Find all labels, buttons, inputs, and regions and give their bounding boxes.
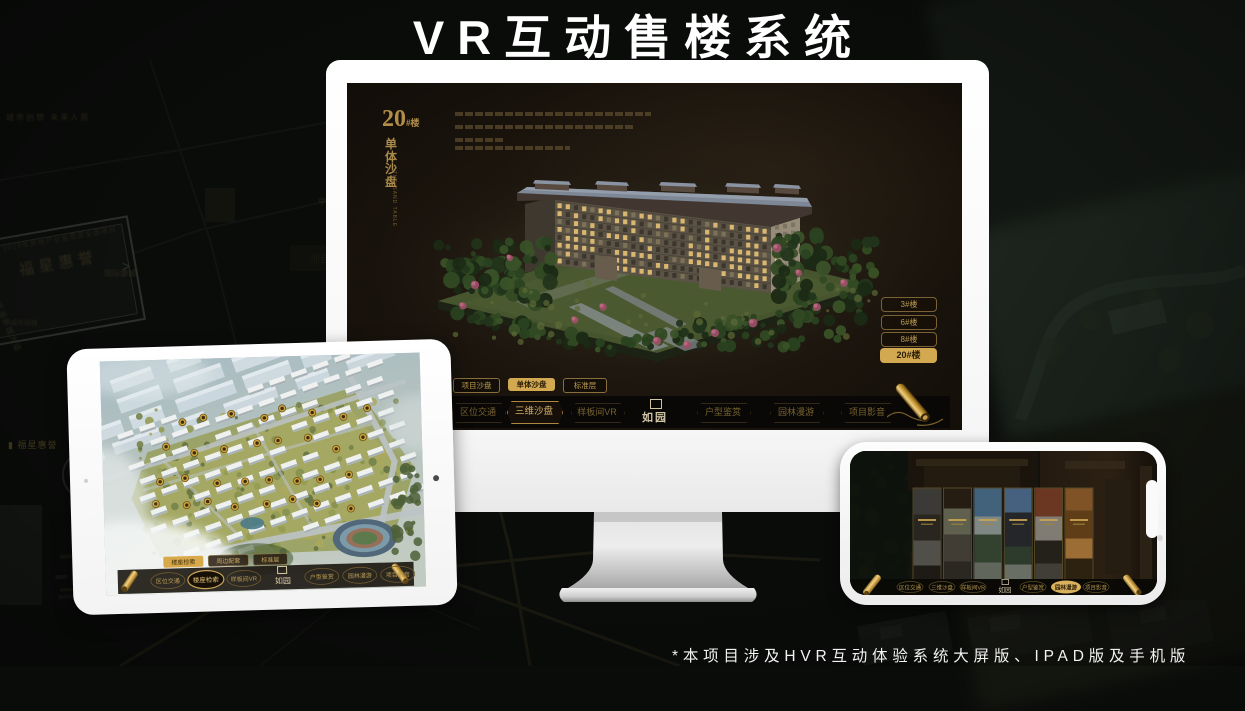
svg-text:户型鉴赏: 户型鉴赏 bbox=[1022, 584, 1045, 592]
svg-text:区位交通: 区位交通 bbox=[899, 584, 922, 592]
svg-text:如园: 如园 bbox=[275, 575, 291, 585]
svg-text:园林漫游: 园林漫游 bbox=[1055, 584, 1078, 592]
svg-text:三维沙盘: 三维沙盘 bbox=[931, 584, 954, 592]
svg-text:样板间VR: 样板间VR bbox=[961, 584, 985, 592]
svg-text:如园: 如园 bbox=[999, 585, 1012, 594]
svg-text:项目影音: 项目影音 bbox=[1085, 584, 1108, 592]
